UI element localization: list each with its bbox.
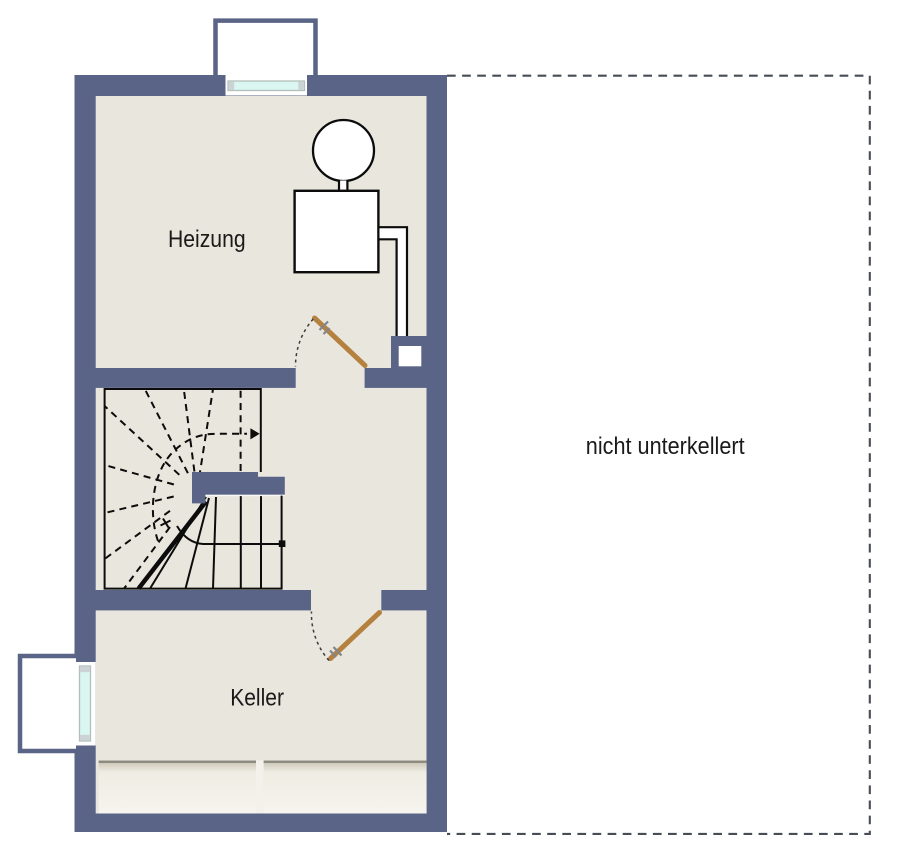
svg-text:Keller: Keller bbox=[230, 684, 284, 711]
svg-text:nicht unterkellert: nicht unterkellert bbox=[586, 433, 745, 460]
svg-text:Heizung: Heizung bbox=[168, 226, 246, 253]
